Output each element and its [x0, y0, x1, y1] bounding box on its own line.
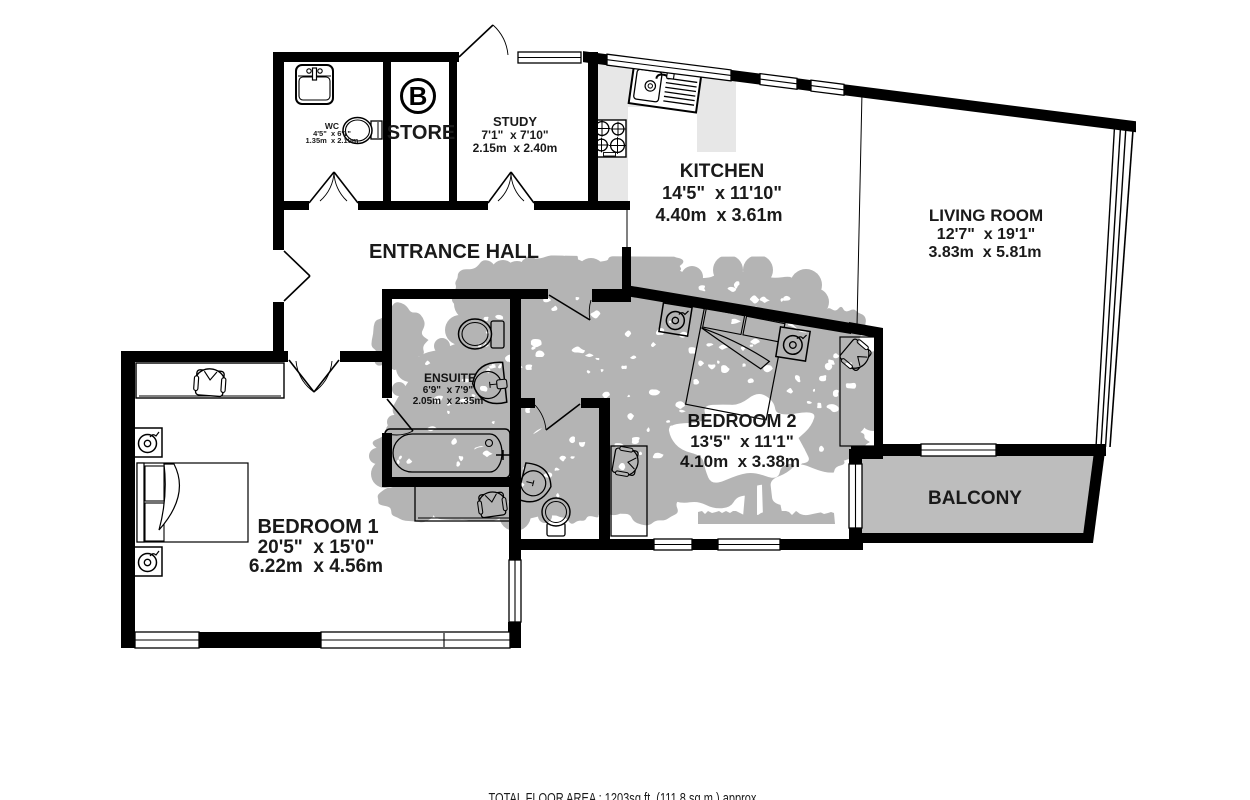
svg-text:STUDY: STUDY — [493, 114, 537, 129]
svg-text:7'1" x 7'10": 7'1" x 7'10" — [481, 128, 548, 142]
svg-text:3.83m x 5.81m: 3.83m x 5.81m — [929, 244, 1042, 261]
svg-text:BALCONY: BALCONY — [928, 488, 1022, 509]
svg-text:KITCHEN: KITCHEN — [680, 161, 764, 182]
svg-text:12'7" x 19'1": 12'7" x 19'1" — [937, 226, 1035, 243]
svg-text:2.15m x 2.40m: 2.15m x 2.40m — [473, 141, 558, 155]
svg-text:LIVING ROOM: LIVING ROOM — [929, 206, 1043, 225]
svg-text:TOTAL FLOOR AREA : 1203sq.ft.: TOTAL FLOOR AREA : 1203sq.ft. (111.8 sq.… — [489, 791, 760, 800]
svg-text:STORE: STORE — [387, 122, 456, 144]
svg-text:B: B — [409, 81, 428, 111]
svg-text:4.40m x 3.61m: 4.40m x 3.61m — [655, 205, 782, 225]
svg-text:14'5" x 11'10": 14'5" x 11'10" — [662, 183, 782, 203]
svg-text:1.35m x 2.10m: 1.35m x 2.10m — [306, 136, 359, 145]
